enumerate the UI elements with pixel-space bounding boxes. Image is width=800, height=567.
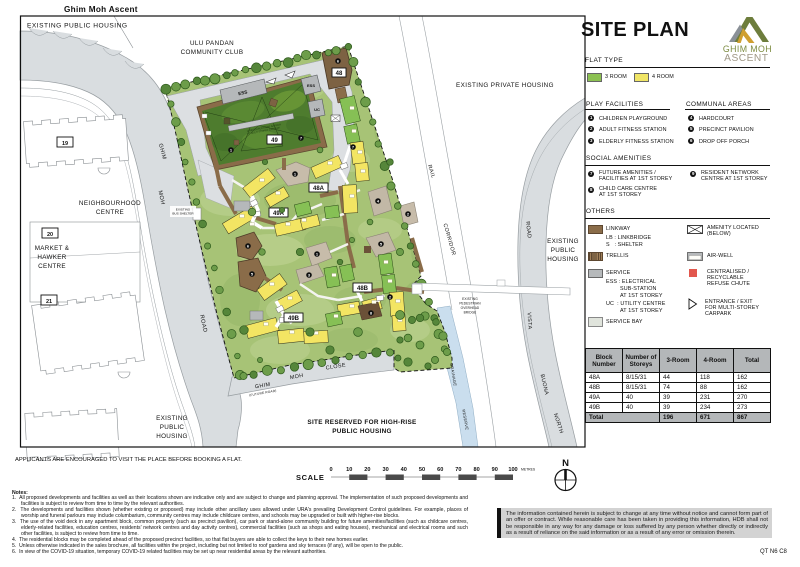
svg-text:EXISTING PUBLIC HOUSING: EXISTING PUBLIC HOUSING [27, 23, 128, 30]
svg-text:N: N [562, 458, 569, 469]
svg-text:METRES: METRES [521, 468, 536, 472]
svg-text:19: 19 [62, 141, 68, 147]
svg-text:ASCENT: ASCENT [724, 53, 768, 64]
svg-text:HOUSING: HOUSING [547, 256, 579, 263]
svg-text:BUS SHELTER: BUS SHELTER [172, 212, 194, 216]
svg-text:SCALE: SCALE [296, 473, 324, 482]
svg-text:EXISTING: EXISTING [547, 238, 579, 245]
svg-text:70: 70 [455, 467, 461, 473]
svg-text:48A: 48A [313, 186, 325, 192]
svg-text:PUBLIC: PUBLIC [551, 247, 576, 254]
svg-text:90: 90 [492, 467, 498, 473]
svg-text:49B: 49B [288, 316, 300, 322]
svg-text:PUBLIC HOUSING: PUBLIC HOUSING [332, 428, 392, 435]
svg-text:40: 40 [401, 467, 407, 473]
svg-text:CENTRE: CENTRE [96, 209, 124, 216]
svg-text:10: 10 [346, 467, 352, 473]
svg-text:VISTA: VISTA [526, 312, 533, 329]
svg-text:48: 48 [336, 71, 343, 77]
svg-text:21: 21 [46, 299, 52, 305]
svg-text:UC: UC [314, 107, 320, 112]
svg-text:60: 60 [437, 467, 443, 473]
svg-text:CENTRE: CENTRE [38, 263, 66, 270]
svg-text:50: 50 [419, 467, 425, 473]
svg-text:EXISTING: EXISTING [156, 415, 188, 422]
svg-text:EXISTING: EXISTING [462, 297, 478, 301]
svg-text:30: 30 [382, 467, 388, 473]
svg-text:MARKET &: MARKET & [35, 245, 70, 252]
svg-text:48B: 48B [357, 286, 369, 292]
svg-text:HOUSING: HOUSING [156, 433, 188, 440]
svg-text:SITE RESERVED FOR HIGH-RISE: SITE RESERVED FOR HIGH-RISE [307, 419, 417, 426]
svg-text:100: 100 [508, 467, 517, 473]
svg-text:NEIGHBOURHOOD: NEIGHBOURHOOD [79, 200, 141, 207]
svg-text:OVERHEAD: OVERHEAD [461, 306, 480, 310]
svg-text:HAWKER: HAWKER [37, 254, 66, 261]
svg-text:0: 0 [329, 467, 332, 473]
svg-text:BRIDGE: BRIDGE [464, 311, 477, 315]
svg-text:ESS: ESS [307, 83, 315, 88]
svg-text:20: 20 [364, 467, 370, 473]
svg-text:COMMUNITY CLUB: COMMUNITY CLUB [181, 49, 244, 56]
svg-text:80: 80 [473, 467, 479, 473]
svg-text:ULU PANDAN: ULU PANDAN [190, 40, 234, 47]
svg-text:49: 49 [271, 138, 278, 144]
svg-text:EXISTING PRIVATE HOUSING: EXISTING PRIVATE HOUSING [456, 82, 554, 89]
svg-text:PUBLIC: PUBLIC [160, 424, 185, 431]
svg-text:PEDESTRIAN: PEDESTRIAN [459, 302, 481, 306]
svg-text:20: 20 [47, 232, 53, 238]
